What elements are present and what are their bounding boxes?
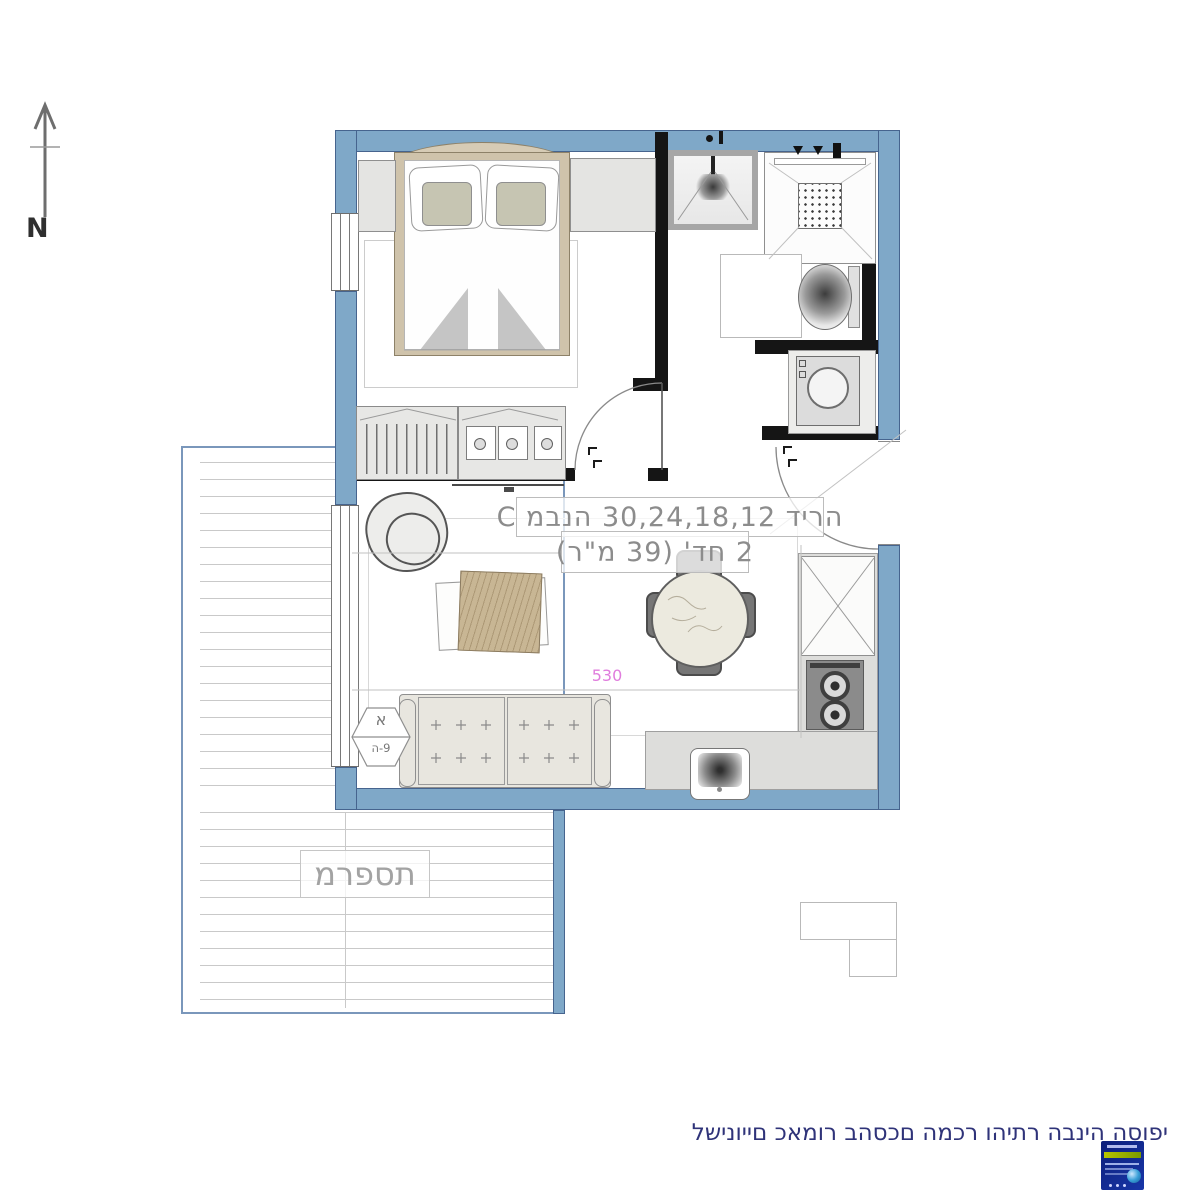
sofa-arm-left <box>399 699 416 787</box>
footer-disclaimer: לשינויים כאמור בהסכם המכר והיתר הבניה הס… <box>648 1120 1168 1146</box>
sofa-cushion-right <box>507 697 592 785</box>
kitchen-sink-basin <box>698 753 742 787</box>
kitchen-counter-horizontal <box>645 731 878 790</box>
bed-cushion-left <box>422 182 472 226</box>
tv-mount <box>504 487 514 492</box>
washer-knob <box>799 360 806 367</box>
wall-left-c <box>335 767 357 810</box>
shower-valve-icon <box>813 146 823 155</box>
sink-drain-shade <box>696 174 730 200</box>
dresser-right <box>570 158 656 232</box>
section-marker-bottom: ה-9 <box>363 741 399 757</box>
kitchen-sink-drain <box>717 787 722 792</box>
wall-right-a <box>878 130 900 440</box>
section-marker-top: א <box>368 710 394 732</box>
wall-right-b <box>878 545 900 810</box>
kitchen-sink <box>690 748 750 800</box>
utility-sink <box>668 150 758 230</box>
stove <box>806 660 864 730</box>
burner-icon <box>820 700 850 730</box>
washer-drum <box>807 367 849 409</box>
watermark-dot <box>1109 1184 1112 1187</box>
dimension-530: 530 <box>582 666 632 686</box>
coffee-table-top <box>458 571 543 654</box>
north-arrow-icon <box>18 95 78 220</box>
watermark-logo <box>1101 1141 1144 1190</box>
dining-table <box>651 570 749 668</box>
balcony-deck-bottom <box>200 812 553 1008</box>
desk-chair-3 <box>541 438 553 450</box>
desk-chair-2 <box>506 438 518 450</box>
watermark-bar <box>1104 1152 1141 1158</box>
north-label: N <box>26 213 49 244</box>
floor-plan-canvas: N מרפסת <box>0 0 1181 1200</box>
unit-label-line2: 2 חד' (39 מ"ר) <box>556 537 754 568</box>
balcony-label-box: מרפסת <box>300 850 430 898</box>
shower-control-icon <box>833 143 841 158</box>
bedroom-partition-wall <box>655 132 668 378</box>
washing-machine <box>796 356 860 426</box>
bedroom-door-jamb <box>648 468 668 481</box>
unit-label-line1: C מבנה 30,24,18,12 דירה <box>497 502 844 533</box>
shower-drain <box>798 183 842 229</box>
nightstand-left <box>358 160 396 232</box>
sofa-arm-right <box>594 699 611 787</box>
balcony-right-wall <box>553 810 565 1014</box>
watermark-line <box>1107 1145 1137 1148</box>
shower-glass <box>774 158 866 165</box>
unit-size-box: 2 חד' (39 מ"ר) <box>561 531 749 573</box>
wall-bottom <box>335 788 900 810</box>
watermark-globe-icon <box>1127 1169 1141 1183</box>
wall-fixture-bar <box>719 131 723 144</box>
kitchen-tall-cabinet <box>801 556 875 656</box>
balcony-label: מרפסת <box>314 855 416 893</box>
wall-left-b <box>335 291 357 505</box>
bedroom-door-swing <box>575 383 662 470</box>
balcony-slider-window <box>331 505 359 767</box>
washer-knob <box>799 371 806 378</box>
wall-left-a <box>335 130 357 215</box>
balcony-deck-left <box>200 462 336 792</box>
wall-fixture-dot <box>706 135 713 142</box>
bed-cushion-right <box>496 182 546 226</box>
tv-console <box>452 484 564 486</box>
toilet <box>798 264 852 330</box>
wardrobe-hangers <box>366 424 448 474</box>
ac-unit-outline-small <box>849 939 897 977</box>
balcony-deck-divider <box>345 812 346 1008</box>
sofa-cushion-left <box>418 697 505 785</box>
watermark-dot <box>1123 1184 1126 1187</box>
entrance-opening <box>878 441 900 545</box>
ac-unit-outline <box>800 902 897 940</box>
bath-cabinet <box>720 254 802 338</box>
watermark-line <box>1105 1163 1139 1165</box>
compass: N <box>18 95 78 250</box>
door-handle-icon <box>588 447 597 455</box>
door-handle-icon <box>788 459 797 467</box>
bedroom-partition-cap <box>633 378 668 391</box>
bedroom-window <box>331 213 359 291</box>
shower-valve-icon <box>793 146 803 155</box>
desk-chair-1 <box>474 438 486 450</box>
stove-controls <box>810 663 860 668</box>
door-handle-icon <box>783 446 792 454</box>
shower <box>764 152 876 264</box>
burner-icon <box>820 671 850 701</box>
watermark-dot <box>1116 1184 1119 1187</box>
door-handle-icon <box>593 460 602 468</box>
toilet-back-wall <box>862 256 876 346</box>
